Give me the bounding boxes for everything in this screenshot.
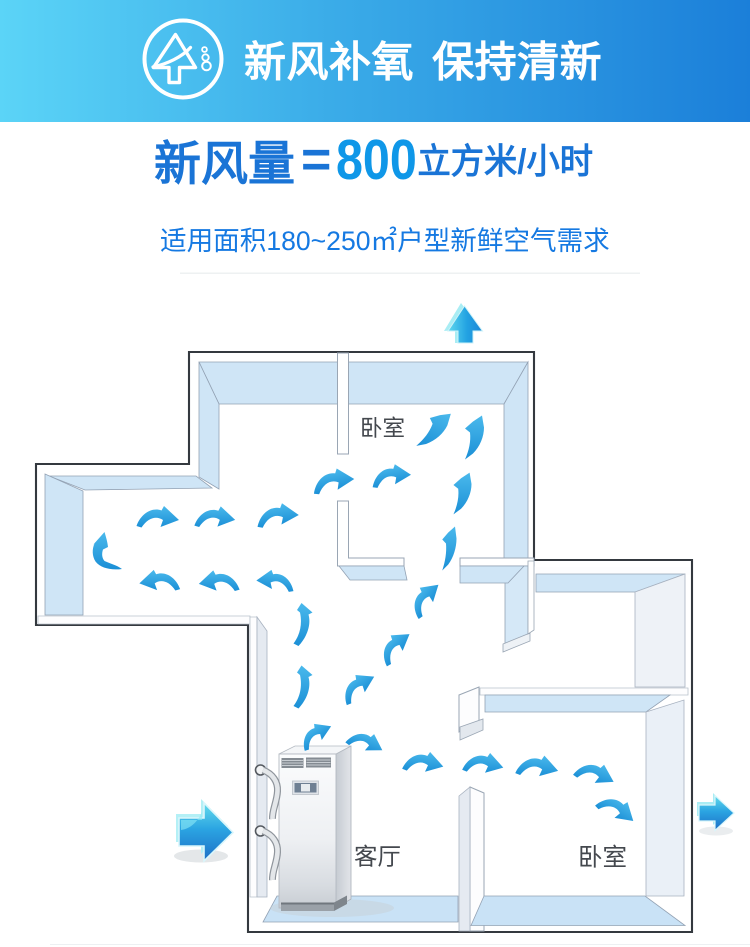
- svg-text:=: =: [301, 131, 331, 189]
- svg-text:800: 800: [336, 128, 417, 192]
- svg-text:卧室: 卧室: [578, 844, 627, 872]
- svg-text:立方米/小时: 立方米/小时: [418, 143, 593, 182]
- svg-text:适用面积180~250㎡户型新鲜空气需求: 适用面积180~250㎡户型新鲜空气需求: [160, 226, 610, 256]
- svg-text:新风补氧 保持清新: 新风补氧 保持清新: [244, 39, 602, 86]
- svg-text:新风量: 新风量: [154, 137, 295, 190]
- svg-text:卧室: 卧室: [360, 416, 405, 441]
- svg-text:客厅: 客厅: [354, 844, 401, 870]
